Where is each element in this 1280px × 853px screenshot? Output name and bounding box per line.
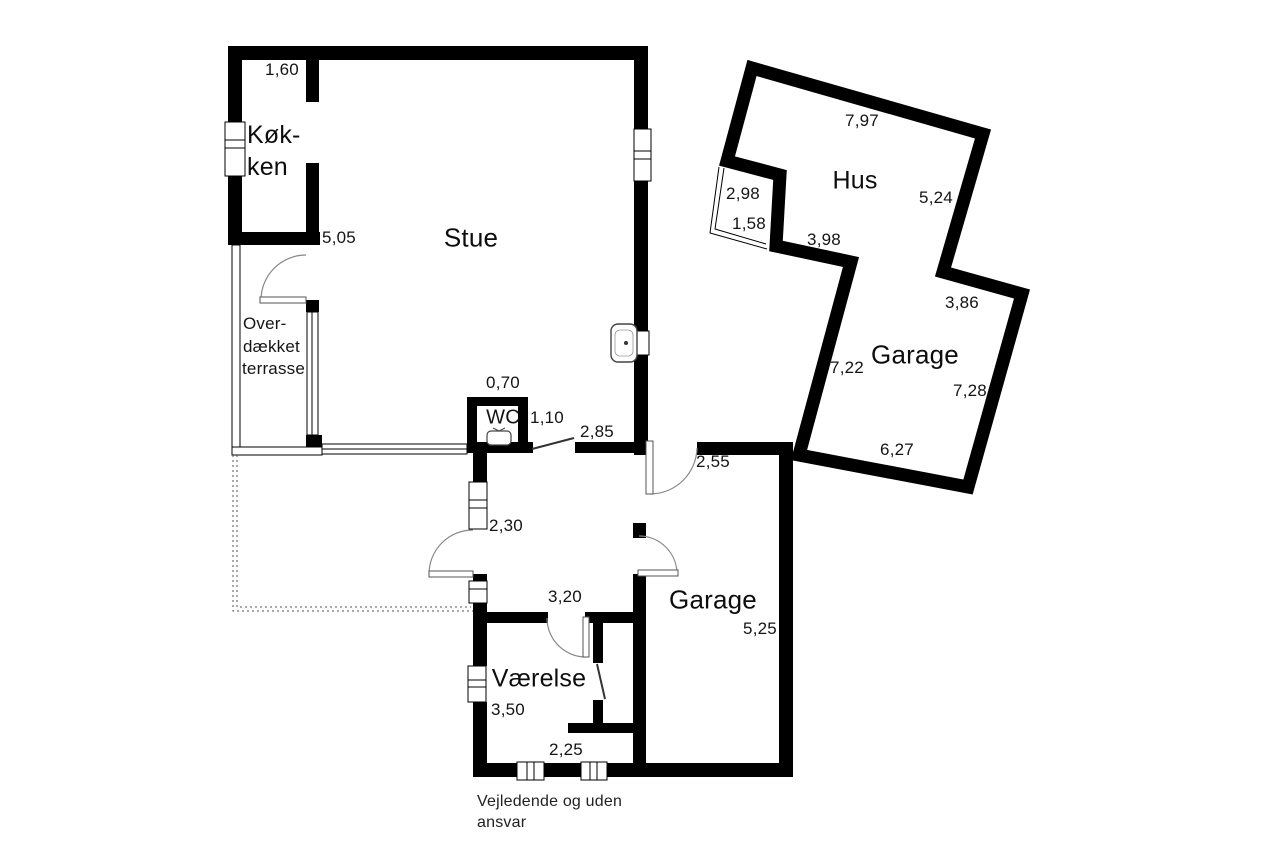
dim-label-398: 3,98 bbox=[807, 230, 841, 250]
bedroom-window-bottom-1 bbox=[517, 762, 544, 780]
dim-label-728: 7,28 bbox=[953, 381, 987, 401]
wc-sliding-door bbox=[532, 438, 574, 449]
dim-label-525: 5,25 bbox=[743, 619, 777, 639]
floor-plan: 1,60 Køk- ken 5,05 Stue Over- dækket ter… bbox=[0, 0, 1280, 853]
dim-label-722: 7,22 bbox=[830, 358, 864, 378]
dim-label-524: 5,24 bbox=[919, 188, 953, 208]
hall-to-garage-door bbox=[638, 536, 678, 576]
patio-door bbox=[429, 530, 473, 577]
hall-window-2 bbox=[469, 581, 487, 603]
bedroom-door bbox=[547, 617, 589, 657]
dim-label-320: 3,20 bbox=[548, 587, 582, 607]
room-label-terrace-line3: terrasse bbox=[242, 359, 305, 379]
dim-label-386: 3,86 bbox=[945, 293, 979, 313]
room-label-living-room: Stue bbox=[444, 223, 498, 254]
room-label-garage: Garage bbox=[669, 585, 757, 616]
dim-label-225: 2,25 bbox=[549, 740, 583, 760]
room-label-house: Hus bbox=[832, 167, 877, 196]
dim-label-350: 3,50 bbox=[491, 700, 525, 720]
dim-label-230: 2,30 bbox=[489, 516, 523, 536]
dim-label-797: 7,97 bbox=[845, 111, 879, 131]
dim-label-298: 2,98 bbox=[726, 184, 760, 204]
room-label-terrace-line1: Over- bbox=[243, 314, 287, 334]
toilet-fixture bbox=[487, 428, 511, 445]
room-label-garage-2: Garage bbox=[871, 340, 959, 371]
main-building-walls bbox=[228, 46, 648, 455]
room-label-kitchen-line1: Køk- bbox=[247, 121, 301, 150]
dim-label-110: 1,10 bbox=[530, 408, 564, 428]
disclaimer-line1: Vejledende og uden bbox=[477, 793, 622, 811]
dim-label-158: 1,58 bbox=[732, 214, 766, 234]
room-label-kitchen-line2: ken bbox=[247, 153, 288, 182]
dim-label-627: 6,27 bbox=[880, 440, 914, 460]
patio-dotted-outline bbox=[233, 455, 473, 611]
closet-sliding-door bbox=[597, 664, 605, 699]
dim-label-070: 0,70 bbox=[486, 373, 520, 393]
dim-label-285: 2,85 bbox=[580, 422, 614, 442]
terrace-door bbox=[260, 255, 306, 303]
floor-plan-drawing bbox=[0, 0, 1280, 853]
wall-niche bbox=[637, 331, 649, 355]
bedroom-window-left bbox=[468, 666, 486, 702]
living-room-window bbox=[634, 129, 651, 181]
dim-label-255: 2,55 bbox=[696, 452, 730, 472]
hall-window-1 bbox=[469, 482, 487, 529]
bedroom-window-bottom-2 bbox=[581, 762, 607, 780]
sink-fixture bbox=[611, 324, 637, 362]
room-label-bedroom: Værelse bbox=[492, 665, 587, 694]
room-label-wc: WC bbox=[486, 407, 520, 430]
dim-label-160: 1,60 bbox=[265, 60, 299, 80]
room-label-terrace-line2: dækket bbox=[243, 337, 300, 357]
dim-label-505: 5,05 bbox=[322, 228, 356, 248]
garage-entry-door bbox=[646, 441, 697, 494]
disclaimer-line2: ansvar bbox=[477, 814, 526, 832]
kitchen-window bbox=[225, 122, 245, 176]
